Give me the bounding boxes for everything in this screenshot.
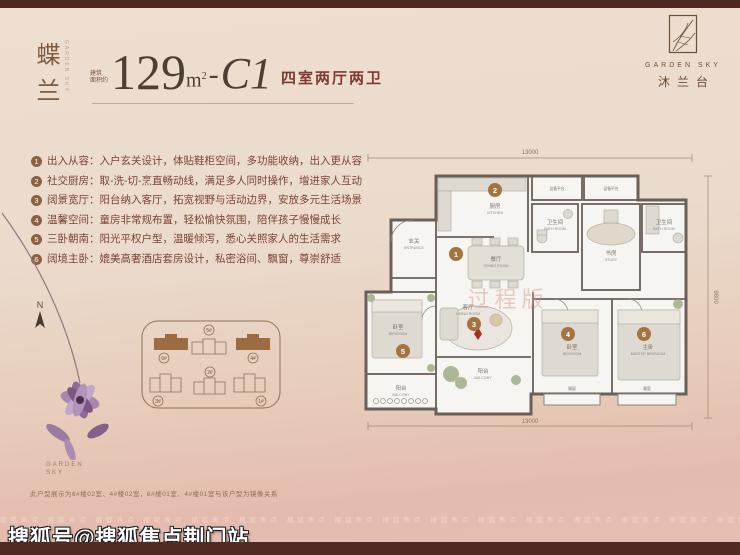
room-label-entrance-en: ENTRANCE [404, 246, 424, 250]
dim-bottom-label: 13000 [522, 419, 539, 425]
room-label-bath2-en: BATH ROOM [653, 227, 675, 231]
building-4: 4# [236, 334, 270, 363]
room-label-master: 主卧 [642, 343, 654, 351]
floor-plan: 13000 13000 9800 [356, 142, 738, 437]
brand-logo: GARDEN SKY 沐兰台 [628, 14, 738, 90]
room-label-bath1: 卫生间 [547, 218, 564, 226]
room-layout-label: 四室两厅两卫 [281, 67, 383, 94]
room-label-entrance: 玄关 [408, 237, 420, 245]
room-label-bay2: 飘窗 [643, 386, 651, 391]
building-6: 6# [154, 334, 188, 363]
bottom-border-bar [0, 542, 740, 555]
building-5-label: 5# [206, 328, 212, 334]
feature-number-badge: 2 [31, 176, 42, 187]
orchid-flower-image [0, 205, 150, 460]
room-label-bath1-en: BATH ROOM [544, 227, 566, 231]
area-unit: m2 [186, 67, 207, 94]
room-label-bedroom5-en: BEDROOM [389, 332, 408, 336]
plan-name-vertical: 蝶兰 [28, 42, 63, 114]
tree-emblem-icon [668, 14, 698, 54]
room-label-study: 书房 [605, 249, 617, 257]
area-value: 129 [111, 50, 186, 94]
room-label-living-en: LIVING ROOM [456, 312, 480, 316]
feature-item: 2 社交厨房：取-洗-切-烹直畅动线，满足多人同时操作，增进家人互动 [31, 176, 371, 187]
top-border-bar [0, 0, 740, 8]
room-label-balcony1: 阳台 [395, 384, 407, 392]
room-label-dining: 餐厅 [490, 255, 502, 263]
room-label-master-en: MASTER BEDROOM [631, 352, 666, 356]
feature-number-badge: 1 [31, 156, 42, 167]
building-5: 5# [192, 325, 226, 354]
room-label-study-en: STUDY [605, 258, 618, 262]
area-prefix-label: 建筑 面积约 [90, 71, 108, 94]
room-label-kitchen: 厨房 [489, 202, 501, 210]
marker-1: 1 [454, 250, 458, 259]
building-2-label: 2# [207, 370, 213, 376]
footer-brand-text: GARDEN SKY [46, 461, 84, 477]
room-label-bay1: 飘窗 [568, 386, 576, 391]
building-6-label: 6# [161, 356, 167, 362]
room-label-bedroom5: 卧室 [392, 323, 404, 331]
dash-separator: - [207, 60, 221, 94]
brand-name-en: GARDEN SKY [628, 62, 738, 69]
room-label-platform1: 设备平台 [549, 186, 564, 191]
room-label-kitchen-en: KITCHEN [487, 211, 503, 215]
building-4-label: 4# [250, 356, 256, 362]
draft-watermark: 过程版 [467, 287, 548, 312]
bay-window [544, 394, 600, 405]
dim-right-label: 9800 [712, 290, 718, 304]
room-label-balcony2: 阳台 [477, 367, 489, 375]
poster: 蝶兰 GARDEN SKY 建筑 面积约 129 m2 - C1 四室两厅两卫 … [0, 0, 740, 555]
feature-item: 1 出入从容：入户玄关设计，体贴鞋柜空间，多功能收纳，出入更从容 [31, 156, 371, 167]
room-label-bedroom4: 卧室 [566, 343, 578, 351]
room-label-platform2: 设备平台 [603, 186, 618, 191]
brand-name-cn: 沐兰台 [628, 73, 738, 90]
marker-6: 6 [642, 330, 646, 339]
building-2: 2# [194, 367, 225, 394]
bay-window [618, 394, 676, 405]
ottoman [490, 314, 502, 326]
marker-5: 5 [401, 347, 405, 356]
disclaimer-text: 此户型展示为6#楼02室、4#楼02室，6#楼01室、4#楼01室与该户型为镜像… [30, 488, 278, 498]
marker-3: 3 [472, 320, 476, 329]
room-label-balcony1-en: BALCONY [392, 393, 410, 397]
building-1-label: 1# [258, 399, 264, 405]
building-1: 1# [234, 374, 266, 406]
feature-text: 出入从容：入户玄关设计，体贴鞋柜空间，多功能收纳，出入更从容 [47, 156, 362, 167]
unit-type-code: C1 [221, 54, 272, 94]
dim-top-label: 13000 [522, 150, 539, 156]
room-label-dining-en: DINING ROOM [484, 264, 509, 268]
marker-2: 2 [493, 186, 497, 195]
headline-underline [92, 103, 354, 104]
building-3: 3# [150, 374, 181, 406]
plan-name-vertical-en: GARDEN SKY [63, 40, 69, 93]
room-label-bath2: 卫生间 [656, 218, 673, 226]
building-3-label: 3# [155, 399, 161, 405]
headline: 建筑 面积约 129 m2 - C1 四室两厅两卫 [90, 50, 383, 94]
room-label-bedroom4-en: BEDROOM [563, 352, 582, 356]
feature-text: 社交厨房：取-洗-切-烹直畅动线，满足多人同时操作，增进家人互动 [47, 176, 362, 187]
unit-base: m [186, 70, 202, 92]
room-label-balcony2-en: BALCONY [474, 376, 492, 380]
site-plan: 6# 5# 4# 3# 2# 1# [140, 316, 282, 412]
